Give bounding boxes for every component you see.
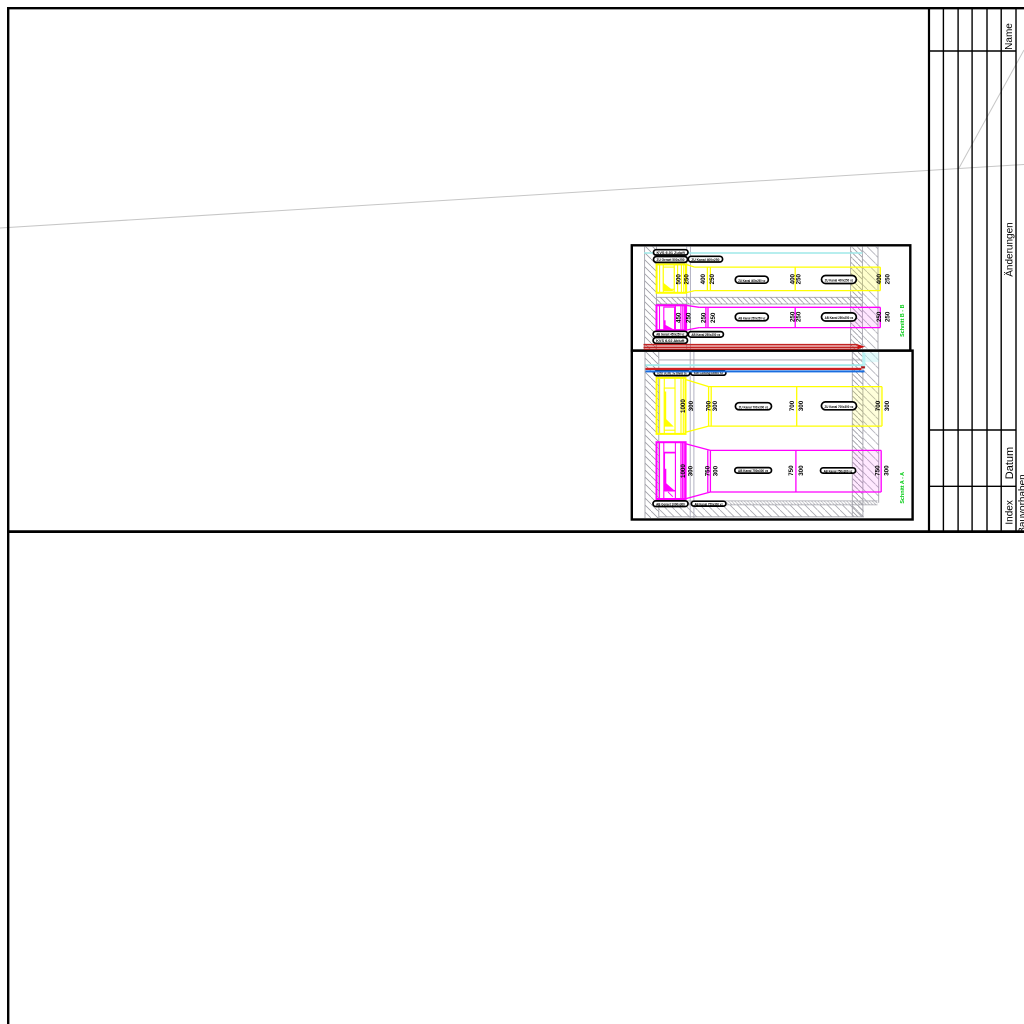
svg-text:300: 300 xyxy=(884,400,891,411)
svg-text:Bauvorhaben: Bauvorhaben xyxy=(1018,474,1024,534)
svg-text:1000: 1000 xyxy=(680,399,687,413)
svg-text:AB Geraet 450x250 vz: AB Geraet 450x250 vz xyxy=(656,333,685,337)
svg-text:450: 450 xyxy=(676,312,683,323)
svg-text:KVS 6.01 Zuluft: KVS 6.01 Zuluft xyxy=(657,251,686,255)
svg-text:250: 250 xyxy=(685,312,692,323)
svg-text:ZU Kanal 700x300 vz: ZU Kanal 700x300 vz xyxy=(739,406,769,410)
svg-text:ZU Geraet 500x250: ZU Geraet 500x250 xyxy=(657,258,685,262)
svg-text:1000: 1000 xyxy=(680,464,687,478)
svg-text:300: 300 xyxy=(884,465,891,476)
svg-text:Schnitt A - A: Schnitt A - A xyxy=(900,472,906,504)
svg-text:300: 300 xyxy=(798,465,805,476)
svg-text:300: 300 xyxy=(688,465,695,476)
svg-text:400: 400 xyxy=(700,273,707,284)
svg-text:250: 250 xyxy=(796,273,803,284)
svg-text:Datum: Datum xyxy=(1004,447,1016,479)
svg-text:250: 250 xyxy=(683,274,690,285)
svg-text:ZU Kanal 700x300 vz: ZU Kanal 700x300 vz xyxy=(825,405,854,409)
svg-text:KVS 6.02 Abluft: KVS 6.02 Abluft xyxy=(656,339,685,343)
svg-text:300: 300 xyxy=(798,400,805,411)
svg-text:Name: Name xyxy=(1004,23,1015,50)
svg-text:750: 750 xyxy=(788,465,795,476)
svg-text:AB Kanal 750x300 vz: AB Kanal 750x300 vz xyxy=(824,469,853,473)
svg-text:700: 700 xyxy=(875,400,882,411)
svg-text:AB Kanal 250x250 vz: AB Kanal 250x250 vz xyxy=(738,316,765,320)
svg-text:ZU Kanal 400x250 vz: ZU Kanal 400x250 vz xyxy=(738,279,765,283)
svg-text:250: 250 xyxy=(701,312,708,323)
svg-text:AB Kanal 750x300 vz: AB Kanal 750x300 vz xyxy=(694,502,723,506)
svg-text:ZU Kanal 400x250: ZU Kanal 400x250 xyxy=(691,258,719,262)
svg-text:Index: Index xyxy=(1005,500,1016,524)
svg-text:AB Kanal 750x300 vz: AB Kanal 750x300 vz xyxy=(738,469,768,473)
svg-text:ZU Kanal 400x250 vz: ZU Kanal 400x250 vz xyxy=(825,279,854,283)
svg-text:250: 250 xyxy=(876,311,883,322)
svg-text:250: 250 xyxy=(884,311,891,322)
svg-text:700: 700 xyxy=(789,400,796,411)
svg-text:300: 300 xyxy=(688,400,695,411)
svg-text:300: 300 xyxy=(712,400,719,411)
svg-text:AB Geraet 1000x300: AB Geraet 1000x300 xyxy=(656,502,685,506)
svg-text:AB Kanal 250x250 vz: AB Kanal 250x250 vz xyxy=(825,316,854,320)
svg-text:250: 250 xyxy=(796,311,803,322)
svg-text:400: 400 xyxy=(876,273,883,284)
svg-text:AB Kanal 250x250 vz: AB Kanal 250x250 vz xyxy=(691,333,720,337)
svg-text:Änderungen: Änderungen xyxy=(1004,222,1016,277)
svg-text:250: 250 xyxy=(884,273,891,284)
svg-text:750: 750 xyxy=(705,465,712,476)
svg-text:250: 250 xyxy=(709,273,716,284)
svg-text:Schnitt B - B: Schnitt B - B xyxy=(900,304,906,336)
svg-text:500: 500 xyxy=(675,274,682,285)
svg-text:750: 750 xyxy=(875,465,882,476)
svg-text:300: 300 xyxy=(713,465,720,476)
svg-text:250: 250 xyxy=(710,312,717,323)
